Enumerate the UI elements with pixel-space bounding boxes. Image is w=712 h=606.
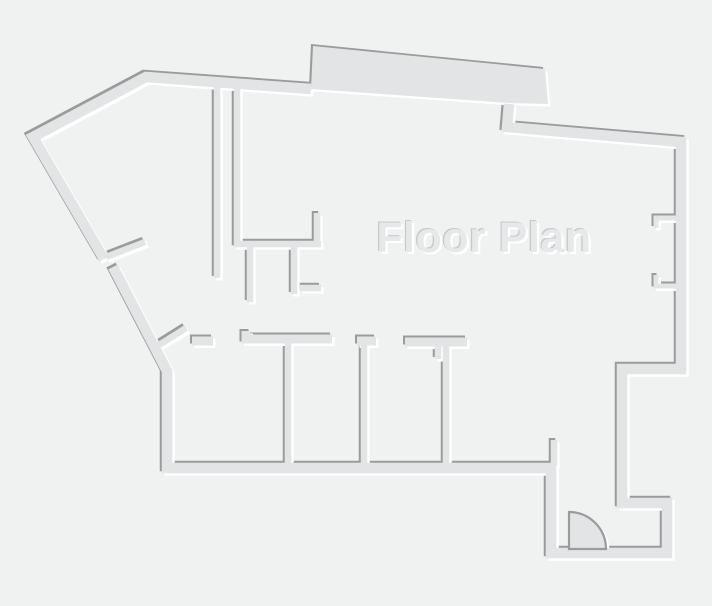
- door-arc: [569, 512, 606, 549]
- main-top-wall-piece: [246, 331, 332, 339]
- floorplan-title: Floor Plan: [376, 214, 591, 262]
- light-outer-wall: [116, 107, 684, 556]
- main-outer-wall: [33, 77, 311, 259]
- floorplan-title-group: Floor Plan Floor Plan Floor Plan: [375, 213, 594, 264]
- main-protrusion-slab: [311, 46, 548, 104]
- wall-layer: [33, 46, 681, 553]
- floorplan-canvas: Floor Plan Floor Plan Floor Plan: [0, 0, 712, 606]
- dark-outer-wall: [111, 102, 679, 551]
- main-outer-wall: [113, 104, 681, 553]
- floorplan-stage: Floor Plan Floor Plan Floor Plan: [0, 0, 712, 606]
- dark-outer-wall: [31, 75, 309, 257]
- light-interior-wall: [240, 88, 324, 247]
- dark-interior-wall: [235, 83, 319, 242]
- main-interior-wall: [237, 85, 321, 244]
